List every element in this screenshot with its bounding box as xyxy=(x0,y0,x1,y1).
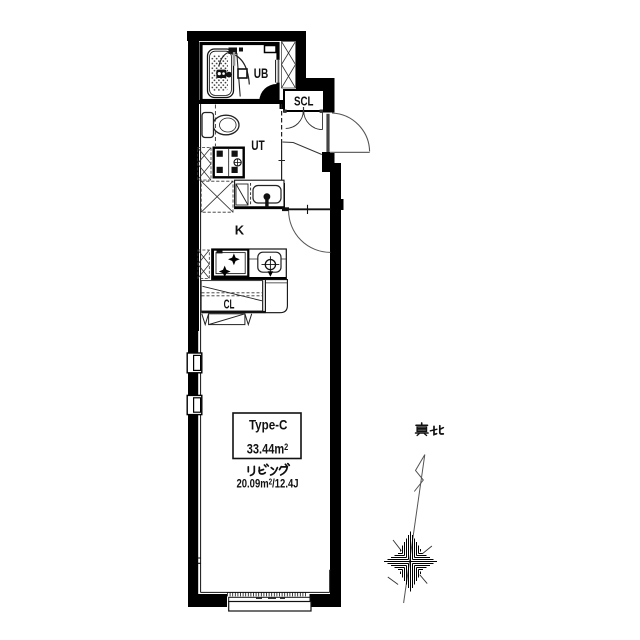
svg-text:UB: UB xyxy=(254,66,269,81)
svg-text:20.09m2/12.4J: 20.09m2/12.4J xyxy=(237,477,299,491)
svg-text:CL: CL xyxy=(224,297,235,311)
svg-text:UT: UT xyxy=(251,138,265,153)
svg-text:K: K xyxy=(235,222,245,237)
svg-text:33.44m2: 33.44m2 xyxy=(247,441,289,456)
svg-text:SCL: SCL xyxy=(294,93,314,108)
svg-text:Type-C: Type-C xyxy=(249,417,288,433)
